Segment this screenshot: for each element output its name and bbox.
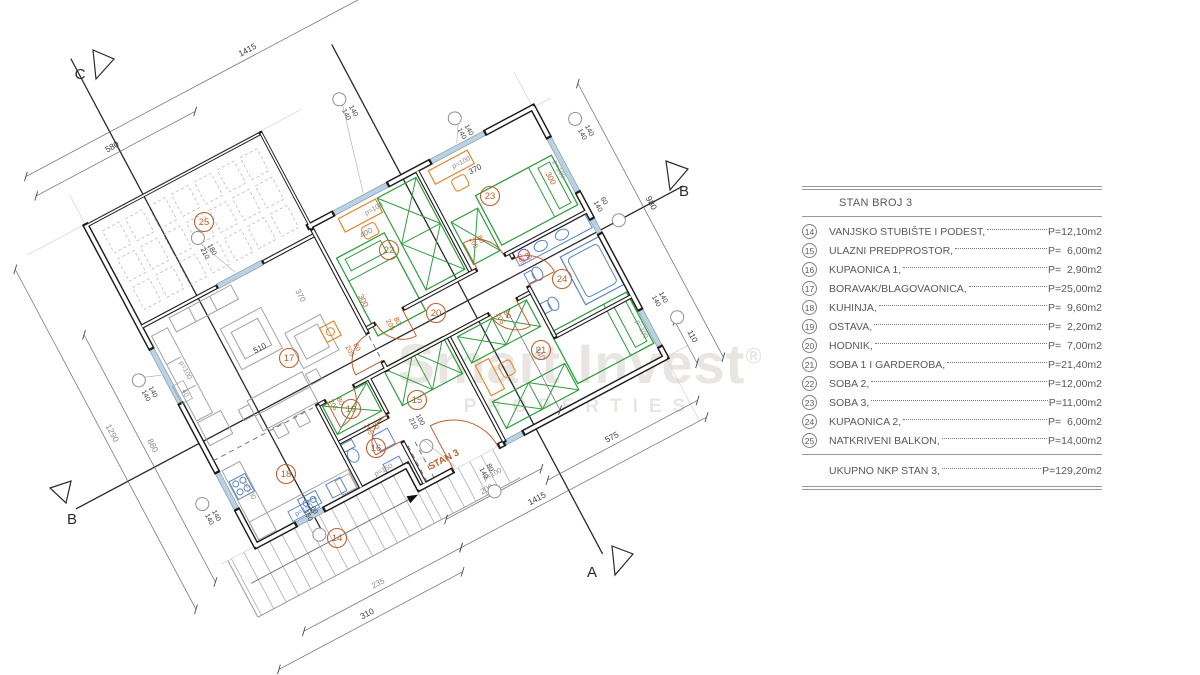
- wall-core: [500, 444, 503, 446]
- table-row: 15ULAZNI PREDPROSTOR,P= 6,00m2: [802, 241, 1102, 260]
- room-area: P= 2,20m2: [1048, 321, 1102, 333]
- wall-core: [237, 510, 256, 546]
- room-legend-table: STAN BROJ 3 14VANJSKO STUBIŠTE I PODEST,…: [802, 186, 1102, 490]
- room-label: SOBA 2,: [829, 378, 869, 390]
- room-number-badge: 16: [802, 262, 817, 277]
- room-number: 20: [431, 308, 442, 319]
- room-number-badge: 20: [802, 338, 817, 353]
- table-row: 16KUPAONICA 1,P= 2,90m2: [802, 260, 1102, 279]
- stove-burner: [236, 488, 244, 496]
- leader-dots: [942, 438, 1047, 439]
- room-number-badge: 15: [802, 243, 817, 258]
- section-letter: C: [75, 66, 86, 83]
- dimension-line: [15, 269, 196, 609]
- stair-tread: [281, 532, 311, 589]
- toilet: [530, 265, 545, 282]
- room-label: KUHINJA,: [829, 302, 877, 314]
- rect: [125, 210, 154, 241]
- dim-tick: [211, 577, 220, 586]
- wall-core: [325, 465, 408, 509]
- room-label: KUPAONICA 1,: [829, 264, 901, 276]
- fireplace: [320, 321, 342, 343]
- stair-tread: [244, 552, 274, 609]
- leader-dots: [955, 248, 1047, 249]
- room-area: P= 6,00m2: [1048, 245, 1102, 257]
- rect: [209, 201, 238, 232]
- table-row: 25NATKRIVENI BALKON,P=14,00m2: [802, 431, 1102, 450]
- table-row: 19OSTAVA,P= 2,20m2: [802, 317, 1102, 336]
- dim-tick: [79, 330, 88, 339]
- dim-tick: [458, 567, 467, 576]
- dim-label: 1415: [526, 489, 548, 507]
- window-sill: [430, 131, 485, 164]
- room-label: ULAZNI PREDPROSTOR,: [829, 245, 953, 257]
- window-marker-circle: [566, 110, 584, 128]
- stair-tread: [380, 480, 410, 537]
- dim-label: 370: [467, 162, 483, 176]
- wall-core: [261, 133, 312, 228]
- marker-leader: [322, 105, 383, 193]
- line: [255, 387, 310, 416]
- leader-dots: [903, 267, 1047, 268]
- room-label: NATKRIVENI BALKON,: [829, 435, 940, 447]
- room-number-badge: 25: [802, 433, 817, 448]
- rect: [231, 318, 272, 359]
- walls: [82, 11, 670, 573]
- leader-dots: [879, 305, 1047, 306]
- room-number-badge: 23: [802, 395, 817, 410]
- dim-tick: [274, 665, 283, 674]
- rect: [171, 185, 200, 216]
- leader-dots: [874, 324, 1047, 325]
- line: [213, 406, 315, 460]
- wall-core: [86, 225, 151, 347]
- room-number: 19: [346, 404, 357, 415]
- dim-tick: [21, 172, 30, 181]
- room-area: P=12,10m2: [1048, 226, 1102, 238]
- stair-tread: [355, 493, 385, 550]
- line: [188, 308, 196, 322]
- line: [492, 383, 542, 429]
- section-line: [332, 44, 603, 553]
- dim-tick: [456, 543, 465, 552]
- stair-tread: [268, 539, 298, 596]
- window-sill: [217, 261, 263, 289]
- leader-dots: [875, 343, 1047, 344]
- rect: [270, 205, 299, 236]
- room-number-badge: 14: [802, 224, 817, 239]
- line: [210, 296, 218, 310]
- room-number: 15: [412, 395, 423, 406]
- stair-tread: [447, 474, 465, 508]
- room-area: P=14,00m2: [1048, 435, 1102, 447]
- dimension-line: [36, 111, 195, 196]
- section-triangle-icon: [93, 50, 114, 79]
- leader-dots: [987, 229, 1047, 230]
- dimension-line: [84, 335, 215, 582]
- table-row: 21SOBA 1 I GARDEROBA,P=21,40m2: [802, 355, 1102, 374]
- wall-core: [264, 236, 313, 262]
- bidet: [546, 295, 561, 312]
- table-row: 14VANJSKO STUBIŠTE I PODEST,P=12,10m2: [802, 222, 1102, 241]
- plan-rotated-group: 1415580575200235141531098012908801104404…: [0, 0, 818, 675]
- room-number: 22: [384, 245, 395, 256]
- rect: [247, 218, 276, 249]
- chair: [451, 174, 470, 193]
- section-line: [76, 186, 683, 509]
- room-area: P=12,00m2: [1048, 378, 1102, 390]
- stair-tread: [493, 449, 511, 483]
- room-area: P=21,40m2: [1048, 359, 1102, 371]
- line: [228, 561, 258, 618]
- table-row: 22SOBA 2,P=12,00m2: [802, 374, 1102, 393]
- table-row: 18KUHINJA,P= 9,60m2: [802, 298, 1102, 317]
- dimension-line: [461, 417, 706, 548]
- leader-dots: [942, 468, 1041, 469]
- room-area: P= 9,60m2: [1048, 302, 1102, 314]
- rect: [140, 238, 169, 269]
- room-number: 18: [281, 469, 292, 480]
- stair-tread: [231, 559, 261, 616]
- window-sill: [504, 431, 524, 445]
- room-number-badge: 24: [802, 414, 817, 429]
- total-area: P=129,20m2: [1042, 465, 1102, 477]
- rect: [294, 324, 329, 359]
- room-label: BORAVAK/BLAGOVAONICA,: [829, 283, 967, 295]
- stair-tread: [343, 500, 373, 557]
- dim-label: 510: [252, 341, 268, 355]
- dim-label: 370: [293, 288, 307, 304]
- room-label: SOBA 3,: [829, 397, 869, 409]
- dim-tick: [573, 79, 582, 88]
- section-line: [71, 59, 321, 530]
- room-number-badge: 17: [802, 281, 817, 296]
- leader-dots: [903, 419, 1047, 420]
- rect: [232, 189, 261, 220]
- stair-tread: [435, 480, 453, 514]
- wall-core: [601, 235, 640, 309]
- rect: [255, 177, 284, 208]
- room-label: KUPAONICA 2,: [829, 416, 901, 428]
- wall-core: [557, 297, 631, 336]
- room-number: 23: [485, 191, 496, 202]
- dim-label: 980: [644, 194, 660, 211]
- circle: [325, 326, 336, 337]
- window-marker-circle: [194, 495, 212, 513]
- table-total: UKUPNO NKP STAN 3,P=129,20m2: [802, 455, 1102, 486]
- window-marker-circle: [610, 211, 628, 229]
- wall-core: [532, 107, 548, 137]
- dimension-line: [578, 83, 724, 357]
- wall-core: [181, 405, 216, 472]
- dim-label: 110: [685, 329, 699, 345]
- floor-plan-sheet: Smart Invest® PROPERTIES 141558057520023…: [0, 0, 1200, 675]
- rect: [224, 230, 253, 261]
- leader-dots: [871, 381, 1047, 382]
- dimension-line: [26, 0, 459, 177]
- dim-tick: [299, 626, 308, 635]
- rect: [217, 161, 246, 192]
- stair-tread: [256, 546, 286, 603]
- section-letter: B: [679, 183, 689, 200]
- room-number: 16: [371, 443, 382, 454]
- dimension-line: [548, 400, 698, 480]
- wall-core: [486, 107, 533, 132]
- room-area: P= 7,00m2: [1048, 340, 1102, 352]
- window-sill: [215, 472, 238, 510]
- line: [369, 336, 382, 361]
- window-marker-circle: [668, 308, 686, 326]
- dim-tick: [31, 191, 40, 200]
- room-number-badge: 18: [802, 300, 817, 315]
- line: [402, 223, 441, 244]
- total-label: UKUPNO NKP STAN 3,: [829, 465, 940, 477]
- wall-core: [511, 254, 513, 257]
- room-area: P= 6,00m2: [1048, 416, 1102, 428]
- line: [413, 352, 433, 389]
- dim-label: 880: [145, 437, 161, 454]
- wall-core: [142, 287, 216, 326]
- rect: [102, 222, 131, 253]
- room-label: VANJSKO STUBIŠTE I PODEST,: [829, 226, 985, 238]
- dim-tick: [537, 464, 546, 473]
- rect: [117, 250, 146, 281]
- stair-tread: [458, 468, 476, 502]
- room-number: 14: [332, 533, 343, 544]
- room-area: P=25,00m2: [1048, 283, 1102, 295]
- dim-label: 300: [356, 293, 370, 309]
- green-furniture: [248, 115, 656, 499]
- leader-dots: [947, 362, 1047, 363]
- section-letter: B: [67, 511, 77, 528]
- dim-tick: [692, 359, 701, 368]
- dim-tick: [191, 605, 200, 614]
- dim-tick: [190, 107, 199, 116]
- table-total-row: UKUPNO NKP STAN 3,P=129,20m2: [802, 461, 1102, 480]
- stair-tread: [424, 486, 442, 520]
- room-number: 24: [557, 274, 568, 285]
- window-marker-circle: [311, 526, 329, 544]
- wall-core: [525, 357, 667, 432]
- stove-burner: [232, 480, 240, 488]
- table-bottom-rule: [802, 486, 1102, 490]
- table-rows: 14VANJSKO STUBIŠTE I PODEST,P=12,10m215U…: [802, 217, 1102, 454]
- section-triangle-icon: [50, 481, 71, 503]
- room-number-badge: 22: [802, 376, 817, 391]
- wall-core: [369, 378, 387, 412]
- stair-tread: [367, 486, 397, 543]
- room-number-badge: 19: [802, 319, 817, 334]
- room-area: P= 2,90m2: [1048, 264, 1102, 276]
- leader-dots: [871, 400, 1048, 401]
- wall-core: [309, 214, 332, 226]
- rect: [132, 279, 161, 310]
- room-number: 21: [536, 345, 547, 356]
- table-row: 17BORAVAK/BLAGOVAONICA,P=25,00m2: [802, 279, 1102, 298]
- dim-tick: [693, 396, 702, 405]
- dimension-line: [279, 572, 463, 670]
- room-number: 25: [199, 217, 210, 228]
- window-marker-circle: [130, 372, 148, 390]
- dim-tick: [702, 412, 711, 421]
- line: [258, 478, 520, 617]
- dim-tick: [543, 475, 552, 484]
- marker-leader: [145, 370, 161, 382]
- window-markers: 1401401401401401401401401401401401401802…: [56, 0, 724, 624]
- room-label: HODNIK,: [829, 340, 873, 352]
- dim-tick: [719, 352, 728, 361]
- rect: [220, 308, 282, 370]
- table-row: 24KUPAONICA 2,P= 6,00m2: [802, 412, 1102, 431]
- wall-core: [506, 210, 589, 254]
- section-triangle-icon: [612, 546, 633, 575]
- table-header: STAN BROJ 3: [802, 190, 1102, 216]
- table-row: 23SOBA 3,P=11,00m2: [802, 393, 1102, 412]
- line: [529, 383, 543, 409]
- room-area: P=11,00m2: [1049, 397, 1102, 409]
- leader-dots: [969, 286, 1047, 287]
- dim-label: 300: [544, 170, 558, 186]
- rect: [240, 149, 269, 180]
- dim-label: 400: [358, 225, 374, 239]
- room-label: OSTAVA,: [829, 321, 872, 333]
- dim-label: 1415: [237, 41, 259, 59]
- section-letter: A: [587, 564, 597, 581]
- rect: [194, 173, 223, 204]
- rect: [155, 266, 184, 297]
- door-swing: [376, 309, 417, 350]
- window-marker-circle: [446, 110, 464, 128]
- table-row: 20HODNIK,P= 7,00m2: [802, 336, 1102, 355]
- window-marker-circle: [331, 91, 349, 109]
- room-label: SOBA 1 I GARDEROBA,: [829, 359, 945, 371]
- room-number-badge: 21: [802, 357, 817, 372]
- room-number: 17: [284, 353, 295, 364]
- dim-tick: [11, 265, 20, 274]
